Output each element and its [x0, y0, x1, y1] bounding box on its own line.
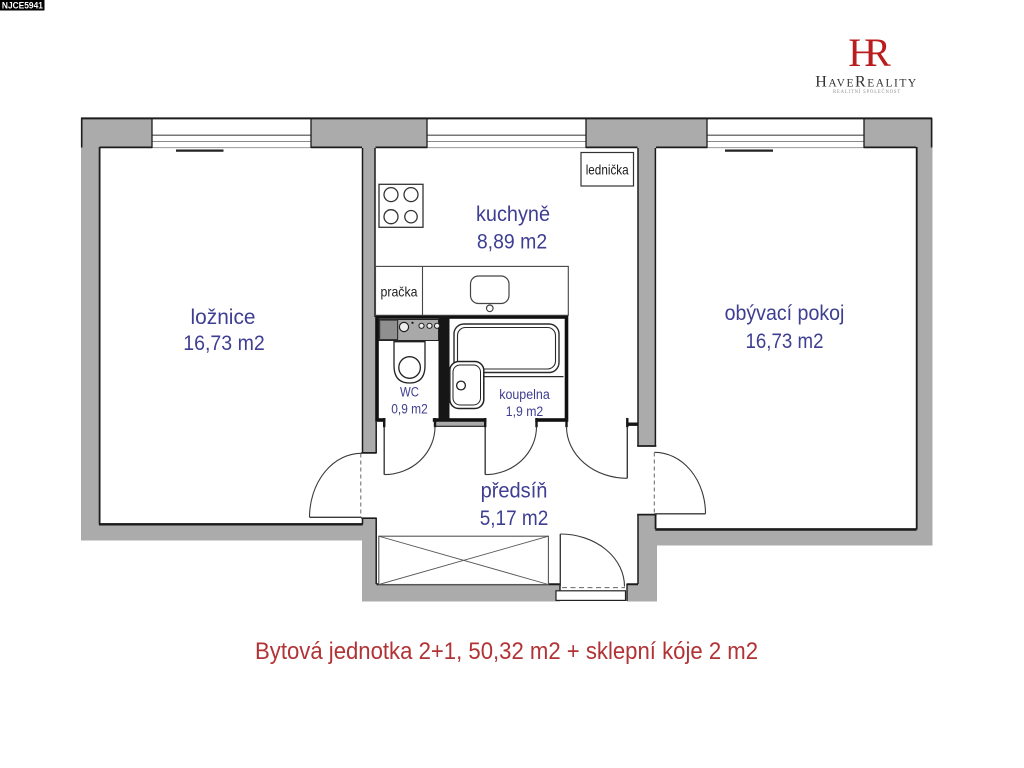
svg-text:obývací pokoj: obývací pokoj — [725, 302, 845, 325]
svg-text:0,9 m2: 0,9 m2 — [391, 402, 428, 417]
svg-text:16,73 m2: 16,73 m2 — [183, 332, 265, 355]
svg-text:předsíň: předsíň — [481, 480, 548, 503]
svg-text:pračka: pračka — [381, 283, 418, 299]
svg-text:1,9 m2: 1,9 m2 — [506, 404, 544, 419]
svg-text:NJCE5941: NJCE5941 — [2, 0, 43, 10]
svg-text:kuchyně: kuchyně — [476, 203, 550, 226]
svg-text:koupelna: koupelna — [499, 387, 550, 402]
svg-text:ložnice: ložnice — [191, 306, 256, 329]
svg-text:Bytová jednotka 2+1, 50,32 m2: Bytová jednotka 2+1, 50,32 m2 + sklepní … — [255, 638, 758, 665]
svg-text:5,17 m2: 5,17 m2 — [480, 507, 549, 530]
svg-text:lednička: lednička — [586, 161, 629, 177]
svg-text:WC: WC — [400, 385, 419, 400]
svg-text:8,89 m2: 8,89 m2 — [477, 231, 547, 254]
svg-text:REALITNÍ SPOLEČNOST: REALITNÍ SPOLEČNOST — [833, 87, 901, 95]
svg-text:16,73 m2: 16,73 m2 — [746, 330, 824, 353]
